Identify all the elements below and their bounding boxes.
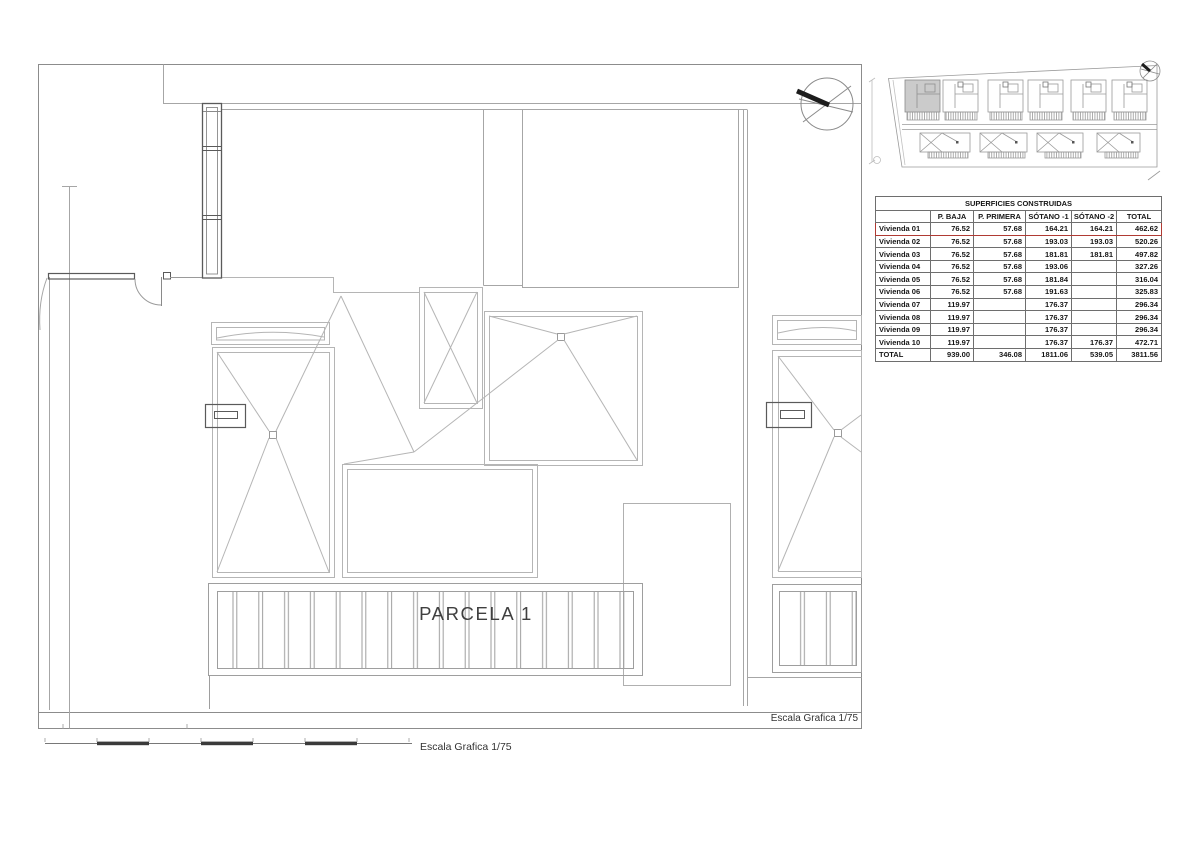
table-cell xyxy=(1072,286,1117,299)
site-plan-thumbnail xyxy=(869,61,1160,180)
table-title: SUPERFICIES CONSTRUIDAS xyxy=(876,197,1162,211)
table-cell: 57.68 xyxy=(974,223,1026,236)
table-cell xyxy=(876,210,931,223)
table-cell xyxy=(1072,260,1117,273)
hip-apex-right xyxy=(558,334,565,341)
thumbnail-unit xyxy=(1112,80,1147,120)
table-cell: Vivienda 03 xyxy=(876,248,931,261)
hip-apex-left xyxy=(270,432,277,439)
patio-skylight xyxy=(420,288,483,409)
table-cell: 346.08 xyxy=(974,349,1026,362)
table-cell: 57.68 xyxy=(974,273,1026,286)
table-cell: 119.97 xyxy=(931,311,974,324)
table-cell: 76.52 xyxy=(931,286,974,299)
thumbnail-unit xyxy=(943,80,978,120)
areas-table: SUPERFICIES CONSTRUIDAS P. BAJA P. PRIME… xyxy=(875,196,1162,362)
table-cell: 164.21 xyxy=(1026,223,1072,236)
table-cell: 1811.06 xyxy=(1026,349,1072,362)
storage-column-strip xyxy=(203,104,222,279)
canopy-parcel2 xyxy=(773,316,862,345)
hip-apex-parcel2 xyxy=(835,430,842,437)
pergola-parcel2 xyxy=(773,585,862,673)
table-cell: 176.37 xyxy=(1026,336,1072,349)
table-cell: 76.52 xyxy=(931,235,974,248)
table-cell: 176.37 xyxy=(1072,336,1117,349)
thumbnail-unit xyxy=(1071,80,1106,120)
table-cell: 497.82 xyxy=(1117,248,1162,261)
thumbnail-unit xyxy=(988,80,1023,120)
graphic-scale-bar xyxy=(45,738,412,745)
table-row-vivienda-07: Vivienda 07 119.97 176.37 296.34 xyxy=(876,298,1162,311)
table-cell: 176.37 xyxy=(1026,298,1072,311)
thumbnail-unit xyxy=(1028,80,1063,120)
table-cell: TOTAL xyxy=(876,349,931,362)
thumbnail-unit xyxy=(1037,133,1083,158)
terrace-rect xyxy=(343,465,538,578)
table-cell: 193.03 xyxy=(1026,235,1072,248)
table-cell xyxy=(1072,273,1117,286)
table-cell: 76.52 xyxy=(931,248,974,261)
table-row-vivienda-04: Vivienda 04 76.52 57.68 193.06 327.26 xyxy=(876,260,1162,273)
table-cell: 57.68 xyxy=(974,248,1026,261)
table-row-vivienda-10: Vivienda 10 119.97 176.37 176.37 472.71 xyxy=(876,336,1162,349)
table-row-vivienda-01: Vivienda 01 76.52 57.68 164.21 164.21 46… xyxy=(876,223,1162,236)
table-cell: 296.34 xyxy=(1117,311,1162,324)
thumbnail-unit-highlighted xyxy=(905,80,940,120)
pool-rect xyxy=(624,504,731,686)
chimney-parcel1 xyxy=(206,405,246,428)
table-cell: 176.37 xyxy=(1026,323,1072,336)
table-cell: 119.97 xyxy=(931,336,974,349)
table-cell: 181.84 xyxy=(1026,273,1072,286)
entry-wall xyxy=(49,104,334,307)
table-cell: Vivienda 05 xyxy=(876,273,931,286)
table-row-vivienda-05: Vivienda 05 76.52 57.68 181.84 316.04 xyxy=(876,273,1162,286)
table-header-row: P. BAJA P. PRIMERA SÓTANO -1 SÓTANO -2 T… xyxy=(876,210,1162,223)
table-cell: 119.97 xyxy=(931,298,974,311)
table-cell: P. PRIMERA xyxy=(974,210,1026,223)
table-row-total: TOTAL 939.00 346.08 1811.06 539.05 3811.… xyxy=(876,349,1162,362)
table-title-row: SUPERFICIES CONSTRUIDAS xyxy=(876,197,1162,211)
thumbnail-unit xyxy=(920,133,970,158)
table-row-vivienda-06: Vivienda 06 76.52 57.68 191.63 325.83 xyxy=(876,286,1162,299)
table-row-vivienda-09: Vivienda 09 119.97 176.37 296.34 xyxy=(876,323,1162,336)
roof-plan-parcel2 xyxy=(767,316,862,673)
table-cell: 181.81 xyxy=(1026,248,1072,261)
thumbnail-unit xyxy=(980,133,1027,158)
table-cell: 325.83 xyxy=(1117,286,1162,299)
thumbnail-unit xyxy=(1097,133,1140,158)
table-cell: Vivienda 07 xyxy=(876,298,931,311)
chimney-parcel2 xyxy=(767,403,812,428)
table-row-vivienda-08: Vivienda 08 119.97 176.37 296.34 xyxy=(876,311,1162,324)
table-cell xyxy=(1072,311,1117,324)
table-row-vivienda-03: Vivienda 03 76.52 57.68 181.81 181.81 49… xyxy=(876,248,1162,261)
table-cell: Vivienda 04 xyxy=(876,260,931,273)
table-cell: 520.26 xyxy=(1117,235,1162,248)
table-cell: 76.52 xyxy=(931,260,974,273)
canopy-parcel1 xyxy=(212,323,330,345)
table-cell: P. BAJA xyxy=(931,210,974,223)
table-cell: 472.71 xyxy=(1117,336,1162,349)
table-cell xyxy=(974,311,1026,324)
table-cell: Vivienda 10 xyxy=(876,336,931,349)
table-cell: Vivienda 02 xyxy=(876,235,931,248)
table-cell: 939.00 xyxy=(931,349,974,362)
parcel-label: PARCELA 1 xyxy=(387,603,565,625)
table-cell: 57.68 xyxy=(974,235,1026,248)
plan-canvas xyxy=(0,0,1200,848)
table-cell: 327.26 xyxy=(1117,260,1162,273)
table-cell: 3811.56 xyxy=(1117,349,1162,362)
table-cell: 76.52 xyxy=(931,223,974,236)
table-cell: 296.34 xyxy=(1117,323,1162,336)
table-cell: 76.52 xyxy=(931,273,974,286)
table-row-vivienda-02: Vivienda 02 76.52 57.68 193.03 193.03 52… xyxy=(876,235,1162,248)
table-cell: TOTAL xyxy=(1117,210,1162,223)
table-cell: 176.37 xyxy=(1026,311,1072,324)
drawing-sheet: PARCELA 1 Escala Grafica 1/75 Escala Gra… xyxy=(0,0,1200,848)
table-cell: 57.68 xyxy=(974,260,1026,273)
table-cell: 164.21 xyxy=(1072,223,1117,236)
table-cell xyxy=(974,336,1026,349)
frame-scale-label: Escala Grafica 1/75 xyxy=(700,713,858,724)
table-cell: 296.34 xyxy=(1117,298,1162,311)
table-cell: 462.62 xyxy=(1117,223,1162,236)
table-cell: Vivienda 08 xyxy=(876,311,931,324)
table-cell: 191.63 xyxy=(1026,286,1072,299)
table-cell: SÓTANO -1 xyxy=(1026,210,1072,223)
thumbnail-unit-row-top xyxy=(905,80,1147,120)
table-cell: Vivienda 01 xyxy=(876,223,931,236)
table-cell: 316.04 xyxy=(1117,273,1162,286)
table-cell: 193.06 xyxy=(1026,260,1072,273)
table-cell: Vivienda 06 xyxy=(876,286,931,299)
bottom-scale-label: Escala Grafica 1/75 xyxy=(420,741,512,753)
table-cell: 57.68 xyxy=(974,286,1026,299)
table-cell: Vivienda 09 xyxy=(876,323,931,336)
table-cell: 193.03 xyxy=(1072,235,1117,248)
table-cell xyxy=(974,298,1026,311)
table-cell: 539.05 xyxy=(1072,349,1117,362)
table-cell xyxy=(974,323,1026,336)
table-cell: 181.81 xyxy=(1072,248,1117,261)
table-cell: 119.97 xyxy=(931,323,974,336)
thumbnail-unit-row-bottom xyxy=(920,133,1140,158)
table-cell xyxy=(1072,298,1117,311)
table-cell xyxy=(1072,323,1117,336)
table-cell: SÓTANO -2 xyxy=(1072,210,1117,223)
